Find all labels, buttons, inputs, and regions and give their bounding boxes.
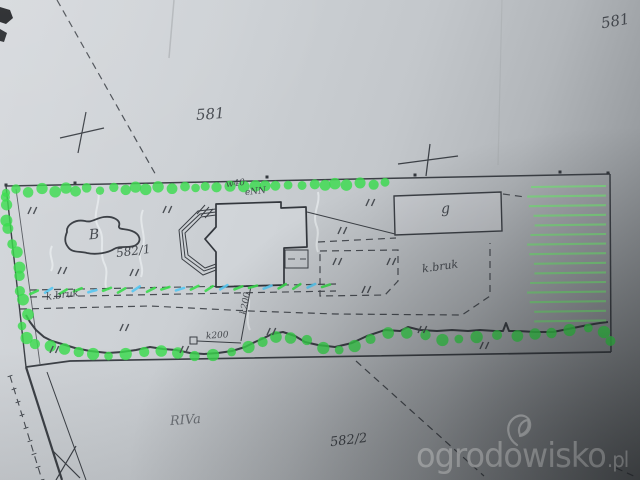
tree-dots-bottom xyxy=(18,322,616,361)
site-plan-photo: 581 581 582/1 582/2 RIVa B g k.bruk k.br… xyxy=(0,0,640,480)
road-edge-lines xyxy=(8,367,86,480)
sewer-label-horizontal: k200 xyxy=(206,331,229,342)
parcel-boundary-dashed-582-2 xyxy=(356,361,636,477)
parcel-label-581-center: 581 xyxy=(196,106,226,123)
embankment-ticks xyxy=(8,375,45,480)
paper-creases xyxy=(169,0,502,165)
grass-hatch xyxy=(527,186,606,321)
survey-cross-topleft xyxy=(60,112,104,153)
garage-label: g xyxy=(441,202,451,216)
house-outline xyxy=(179,202,395,287)
pond-label: B xyxy=(88,228,99,243)
parcel-boundary-dashed-581 xyxy=(57,0,157,177)
survey-cross-top-center xyxy=(398,144,458,176)
tree-dots-top xyxy=(2,177,390,197)
paper-blemish xyxy=(0,7,13,42)
house-terrace-right xyxy=(285,250,308,268)
soil-class-label: RIVa xyxy=(170,413,202,428)
